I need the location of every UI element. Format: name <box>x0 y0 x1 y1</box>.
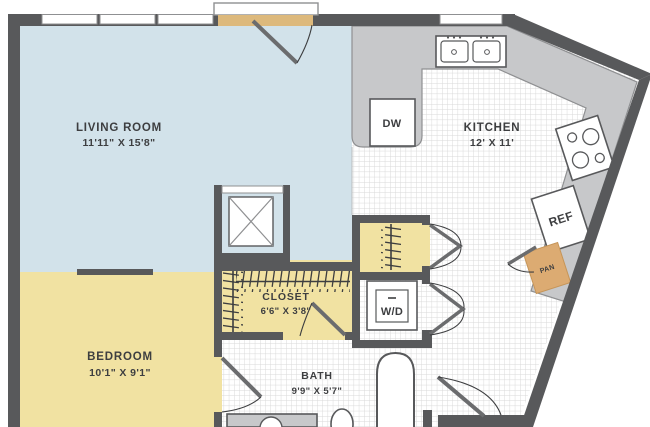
shaft-opening <box>222 186 283 193</box>
wall-left <box>8 14 20 427</box>
bedroom-floor <box>20 272 222 427</box>
bathtub <box>377 353 414 427</box>
closet-dims: 6'6" X 3'8" <box>261 306 312 317</box>
wall-bath-top-left <box>214 332 283 340</box>
washer-dryer: W/D <box>367 281 417 330</box>
kitchen-dims: 12' X 11' <box>470 137 514 149</box>
window-living-1 <box>42 15 97 25</box>
closet-label: CLOSET <box>262 291 309 303</box>
wall-wd-bottom <box>352 340 430 348</box>
floor-plan: DW REF PAN <box>0 0 650 427</box>
dishwasher: DW <box>370 99 415 146</box>
bedroom-partial-wall <box>77 269 153 275</box>
kitchen-label: KITCHEN <box>464 122 521 134</box>
closet-rod-left <box>223 266 243 332</box>
wall-bath-top-right-stub <box>345 332 360 340</box>
bedroom-label: BEDROOM <box>87 351 153 363</box>
floor-plan-canvas: DW REF PAN <box>0 0 650 427</box>
entry-door-frame <box>214 3 318 15</box>
window-living-2 <box>100 15 155 25</box>
living-room-label: LIVING ROOM <box>76 122 162 134</box>
shaft-room <box>222 192 283 255</box>
window-kitchen <box>440 15 502 25</box>
wall-closet-top <box>214 262 360 271</box>
wall-bedroom-right-lower <box>214 412 222 427</box>
wall-linen-wd-divider <box>352 272 430 280</box>
window-living-3 <box>158 15 213 25</box>
wall-tub-hall-lower-stub <box>423 410 432 427</box>
wall-shaft-right <box>283 185 290 262</box>
washer-dryer-label: W/D <box>381 306 403 318</box>
bath-vanity <box>227 414 317 427</box>
kitchen-sink <box>436 36 506 67</box>
wall-linen-top <box>352 215 430 223</box>
linen-closet-rod <box>381 224 401 270</box>
living-room-dims: 11'11" X 15'8" <box>82 137 155 149</box>
wall-bottom-right <box>438 415 530 427</box>
bath-dims: 9'9" X 5'7" <box>292 386 343 397</box>
entry-threshold <box>218 15 313 26</box>
wall-closets-left <box>352 215 360 348</box>
wall-linen-right-stub <box>422 215 430 225</box>
living-room-floor <box>20 26 352 272</box>
dishwasher-label: DW <box>383 118 402 130</box>
bedroom-dims: 10'1" X 9'1" <box>89 367 151 379</box>
closet-rod-top <box>236 271 350 292</box>
wall-shaft-bottom <box>215 253 290 262</box>
bath-label: BATH <box>301 370 333 382</box>
